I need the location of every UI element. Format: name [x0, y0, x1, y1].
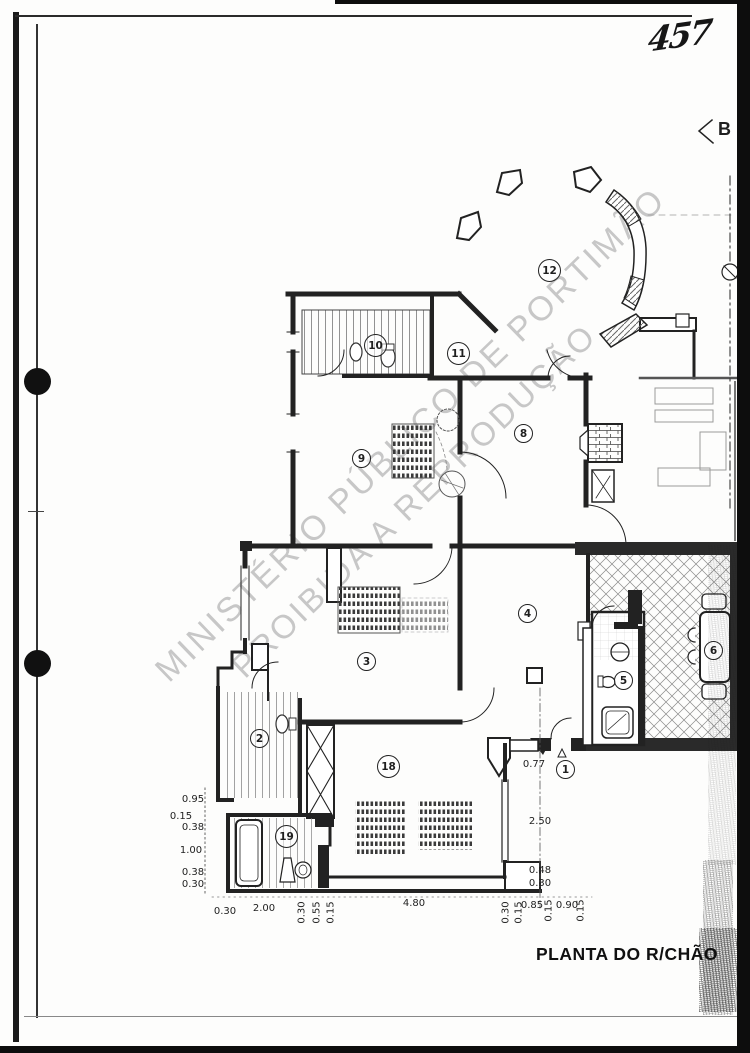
room-5-bathroom	[583, 590, 645, 745]
room-label-18: 18	[377, 755, 400, 778]
dim-bottom-0: 0.30	[211, 906, 239, 917]
room-9-interior	[392, 409, 465, 497]
dim-bottom-2: 4.80	[400, 898, 428, 909]
scan-smudge	[699, 928, 737, 1012]
room-label-1: 1	[556, 760, 575, 779]
section-line	[676, 120, 738, 510]
dim-bottom-rot-5: 0.15	[544, 899, 555, 923]
room-label-11: 11	[447, 342, 470, 365]
frame-top-line	[15, 15, 692, 17]
room-label-9: 9	[352, 449, 371, 468]
frame-inner-line	[36, 24, 38, 1018]
room-label-4: 4	[518, 604, 537, 623]
room-label-19: 19	[275, 825, 298, 848]
dim-bottom-rot-3: 0.30	[501, 901, 512, 925]
dim-left-0: 0.95	[179, 794, 207, 805]
shaft	[307, 725, 334, 827]
room-label-2: 2	[250, 729, 269, 748]
room-label-3: 3	[357, 652, 376, 671]
walls	[205, 120, 738, 908]
dim-left-2: 0.38	[179, 822, 207, 833]
dim-left-3: 1.00	[177, 845, 205, 856]
dim-left-5: 0.30	[179, 879, 207, 890]
room-label-6: 6	[704, 641, 723, 660]
scan-smudge	[708, 545, 736, 865]
frame-bottom-line	[24, 1016, 737, 1017]
dim-bottom-rot-6: 0.15	[576, 899, 587, 923]
frame-tick	[28, 511, 44, 512]
dim-right-0: 0.77	[520, 759, 548, 770]
dim-bottom-rot-1: 0.55	[312, 901, 323, 925]
dim-bottom-rot-0: 0.30	[297, 901, 308, 925]
scan-edge-left	[13, 12, 19, 1042]
scan-edge-top	[335, 0, 750, 4]
fireplace	[580, 424, 622, 462]
punch-hole-top	[24, 368, 51, 395]
room-label-8: 8	[514, 424, 533, 443]
scan-edge-bottom	[0, 1046, 750, 1053]
dim-right-3: 0.30	[526, 878, 554, 889]
room-label-12: 12	[538, 259, 561, 282]
room-label-5: 5	[614, 671, 633, 690]
dim-bottom-1: 2.00	[250, 903, 278, 914]
adjacent-room-furniture	[640, 378, 737, 540]
room-label-10: 10	[364, 334, 387, 357]
dim-right-2: 0.48	[526, 865, 554, 876]
dim-bottom-rot-2: 0.15	[326, 901, 337, 925]
floor-plan-drawing	[0, 0, 750, 1053]
room-12-terrace	[457, 167, 733, 378]
page-title: PLANTA DO R/CHÃO	[536, 944, 718, 965]
punch-hole-bottom	[24, 650, 51, 677]
scan-edge-right	[737, 0, 750, 1053]
dim-left-1: 0.15	[167, 811, 195, 822]
dim-left-4: 0.38	[179, 867, 207, 878]
dim-right-1: 2.50	[526, 816, 554, 827]
scanned-floor-plan-page: MINISTÉRIO PÚBLICO DE PORTIMÃO PROIBIDA …	[0, 0, 750, 1053]
section-letter: B	[718, 119, 731, 140]
dim-bottom-rot-4: 0.15	[514, 901, 525, 925]
